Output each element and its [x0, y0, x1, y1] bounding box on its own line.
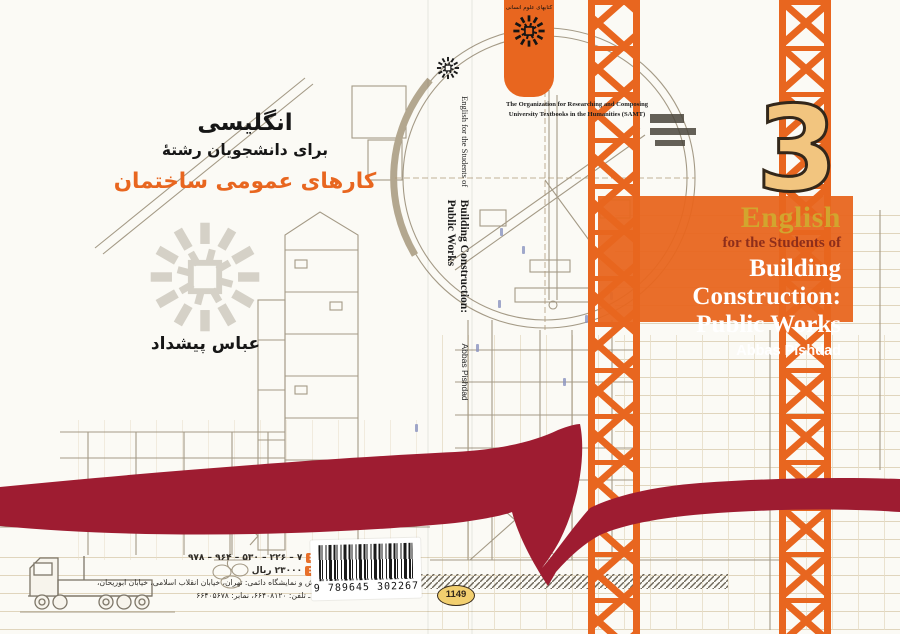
volume-number: 3 — [756, 90, 838, 208]
back-subject-line2: برای دانشجویان رشتهٔ — [95, 141, 395, 159]
spine-title-line1: Building Construction: — [457, 200, 470, 313]
isbn-value: ۹۷۸ – ۹۶۴ – ۵۳۰ – ۲۲۶ – ۷ — [188, 553, 302, 563]
spine-author: Abbas Pishdad — [460, 343, 470, 400]
back-subject-line1: انگلیسی — [95, 110, 395, 136]
publisher-fa-text: کتابهای علوم انسانی — [504, 5, 554, 11]
title-sub: for the Students of — [723, 235, 841, 252]
front-title-box: English for the Students of Building Con… — [598, 196, 853, 322]
address-line1: مرکز پخش و نمایشگاه دائمی: تهران، خیابان… — [112, 577, 340, 590]
price-line: قیمت: ۲۳۰۰۰ ریال — [112, 565, 340, 578]
imprint-block: شابک: ۹۷۸ – ۹۶۴ – ۵۳۰ – ۲۲۶ – ۷ قیمت: ۲۳… — [112, 552, 340, 602]
spine-lead: English for the Students of — [460, 96, 470, 187]
price-value: ۲۳۰۰۰ ریال — [252, 566, 302, 576]
watermark-emblem-icon — [146, 218, 264, 336]
back-subject-block: انگلیسی برای دانشجویان رشتهٔ کارهای عموم… — [95, 110, 395, 194]
front-author: Abbas Pishdad — [736, 343, 841, 359]
samt-logo-icon — [512, 14, 546, 48]
back-author: عباس پیشداد — [138, 334, 273, 354]
publisher-banner: کتابهای علوم انسانی — [504, 0, 554, 97]
barcode: 9 789645 302267 — [310, 538, 422, 601]
title-line2: Public Works — [696, 311, 841, 338]
publisher-line1: The Organization for Researching and Com… — [490, 100, 664, 110]
publisher-line2: University Textbooks in the Humanities (… — [490, 110, 664, 120]
publisher-name: The Organization for Researching and Com… — [490, 100, 664, 119]
spine-title: Building Construction: Public Works — [444, 200, 470, 313]
isbn-line: شابک: ۹۷۸ – ۹۶۴ – ۵۳۰ – ۲۲۶ – ۷ — [112, 552, 340, 565]
series-number-badge: 1149 — [437, 585, 475, 606]
title-main: Building Construction: Public Works — [606, 255, 841, 339]
spine-title-line2: Public Works — [444, 200, 457, 313]
mini-emblem-icon — [436, 56, 460, 80]
back-subject-line3: کارهای عمومی ساختمان — [95, 169, 395, 194]
address-line2: شماره ۲ ـ تلفن: ۶۶۴۰۸۱۲۰، نمابر: ۶۶۴۰۵۶۷… — [112, 590, 340, 603]
barcode-number: 9 789645 302267 — [311, 581, 421, 595]
book-cover: کتابهای علوم انسانی The Organization for… — [0, 0, 900, 634]
title-lead: English — [741, 202, 841, 234]
barcode-bars — [318, 543, 413, 581]
spine-text: English for the Students of Building Con… — [444, 96, 470, 436]
title-line1: Building Construction: — [692, 255, 841, 310]
